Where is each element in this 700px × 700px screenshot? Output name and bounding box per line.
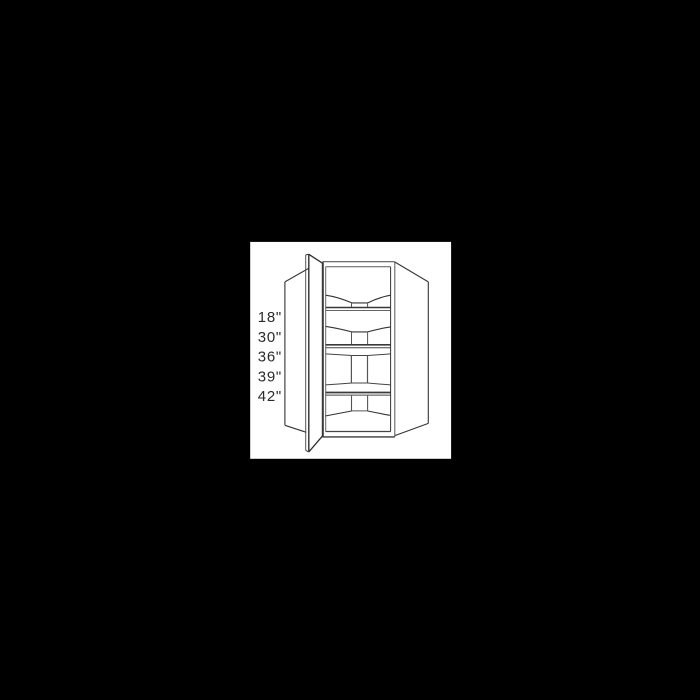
svg-text:42": 42": [258, 388, 282, 405]
svg-text:30": 30": [258, 329, 282, 346]
svg-text:39": 39": [258, 368, 282, 385]
svg-text:36": 36": [258, 349, 282, 366]
svg-text:18": 18": [258, 309, 282, 326]
